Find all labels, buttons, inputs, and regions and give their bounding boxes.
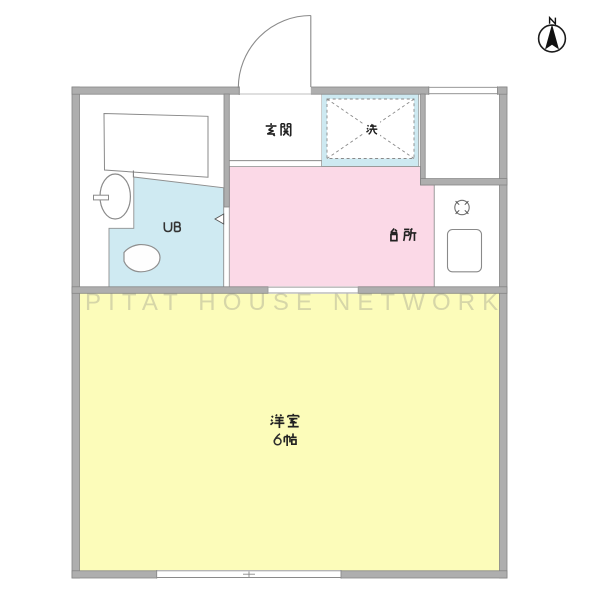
svg-text:PITAT HOUSE NETWORK: PITAT HOUSE NETWORK: [85, 289, 505, 316]
